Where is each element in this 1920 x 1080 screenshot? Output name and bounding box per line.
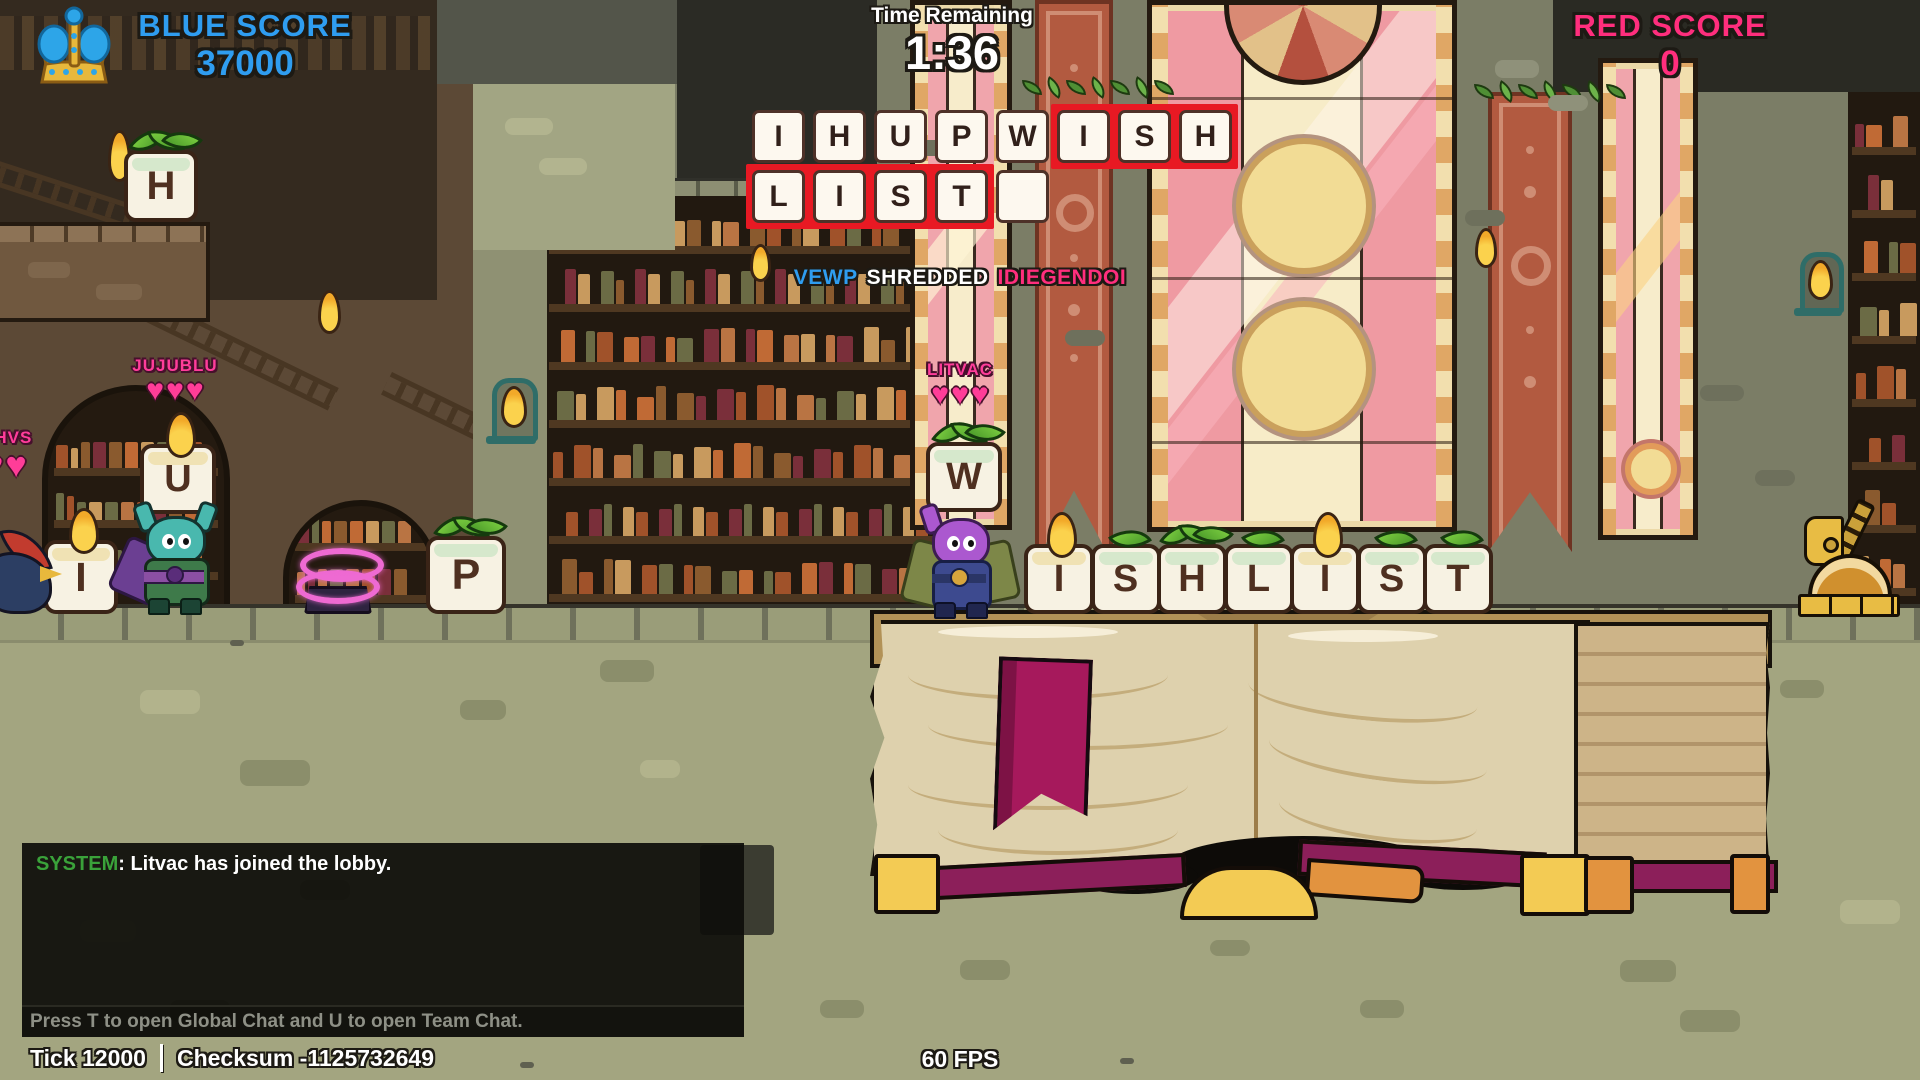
book-spine: [1864, 241, 1878, 273]
book-spine: [734, 443, 751, 478]
book-spine: [704, 329, 719, 362]
book-spine: [729, 509, 742, 536]
book-spine: [597, 387, 614, 420]
book-spine: [574, 445, 591, 478]
player-jujublu: JUJUBLU ♥♥♥ U: [110, 356, 240, 404]
book-spine: [797, 395, 814, 420]
book-spine: [776, 388, 786, 420]
timer-value: 1:36: [802, 28, 1102, 78]
floor-brick: [1680, 1010, 1740, 1032]
floor-brick: [460, 700, 506, 720]
bookshelf-row: [1852, 407, 1916, 470]
heart-icon: ♥: [166, 378, 184, 404]
book-spine: [877, 387, 894, 420]
floor-brick: [1780, 680, 1824, 698]
garland-leaf: [1518, 84, 1538, 99]
letter-tile-h: H: [124, 150, 198, 222]
book-spine: [579, 572, 593, 594]
book-spine: [382, 521, 395, 543]
book-spine: [334, 521, 347, 543]
book-spine: [837, 391, 854, 420]
rack-group: [996, 170, 1049, 223]
floor-brick: [1620, 960, 1676, 982]
floor-brick: [960, 960, 1010, 980]
book-spine: [109, 442, 122, 468]
book-spine: [398, 521, 411, 543]
book-spine: [674, 504, 682, 536]
window-circle: [1236, 301, 1372, 437]
book-spine: [1900, 243, 1916, 273]
wall-brick: [1495, 60, 1539, 78]
leaf-icon: [1444, 526, 1480, 552]
book-spine: [855, 564, 871, 594]
book-spine: [312, 515, 319, 543]
letter-rack: IHUPWISH LIST: [752, 110, 1232, 230]
stone-ledge: [0, 222, 210, 322]
book-spine: [586, 331, 595, 362]
letter-tile-w: W: [926, 442, 1002, 512]
book-spine: [604, 559, 613, 594]
timer-label: Time Remaining: [802, 4, 1102, 28]
player-nameplate-shvs: SHVS ♥♥: [0, 428, 72, 478]
bookshelf-row: [1852, 344, 1916, 407]
sprout-icon: [934, 418, 994, 448]
player-hearts: ♥♥♥: [900, 382, 1020, 408]
leaf-icon: [1245, 526, 1281, 552]
book-spine: [696, 396, 706, 420]
chat-system-message: SYSTEM: Litvac has joined the lobby.: [22, 843, 744, 886]
window-rosette: [1625, 443, 1677, 495]
book-spine: [378, 569, 391, 595]
book-spine: [684, 565, 693, 594]
book-spine: [666, 337, 675, 362]
book-spine: [721, 328, 735, 362]
rack-tile-i[interactable]: I: [1057, 110, 1110, 163]
book-spine: [884, 504, 892, 536]
floor-brick: [640, 760, 680, 778]
book-spine: [297, 524, 309, 543]
garland: [1022, 80, 1174, 95]
bookshelf-row: [1852, 155, 1916, 218]
book-spine: [894, 455, 911, 478]
heart-icon: ♥: [186, 378, 204, 404]
book-spine: [125, 442, 138, 468]
book-spine: [589, 509, 602, 536]
garland-leaf: [1066, 80, 1086, 95]
book-spine: [654, 451, 671, 478]
book-spine: [757, 385, 774, 420]
letter-tile-s: S: [1357, 544, 1427, 614]
book-spine: [561, 330, 575, 362]
leaf-icon: [1378, 526, 1414, 552]
book-spine: [712, 221, 721, 246]
book-spine: [616, 280, 624, 304]
book-spine: [659, 564, 673, 594]
eye: [178, 534, 191, 549]
book-spine: [1860, 307, 1877, 336]
book-spine: [71, 448, 78, 468]
book-spine: [636, 512, 648, 536]
chat-panel[interactable]: SYSTEM: Litvac has joined the lobby. Pre…: [22, 843, 744, 1037]
chat-messages[interactable]: SYSTEM: Litvac has joined the lobby.: [22, 843, 744, 1005]
book-spine: [637, 397, 654, 420]
floor-brick: [1210, 940, 1250, 956]
stone-pillar-lit: [473, 84, 675, 250]
rack-tile-u[interactable]: U: [874, 110, 927, 163]
book-spine: [322, 521, 331, 543]
chat-hint-text: Press T to open Global Chat and U to ope…: [30, 1011, 523, 1033]
book-spine: [837, 336, 853, 362]
book-clasp: [1730, 854, 1770, 914]
red-score-value: 0: [1570, 44, 1770, 84]
book-spine: [105, 502, 118, 520]
garland-leaf: [1154, 80, 1174, 95]
rack-tile-s[interactable]: S: [874, 170, 927, 223]
rack-tile-p[interactable]: P: [935, 110, 988, 163]
book-spine: [846, 512, 858, 536]
character-body: [910, 504, 1010, 612]
flame-icon: [166, 412, 196, 458]
book-spine: [1855, 124, 1864, 147]
status-bar: Tick 12000 Checksum -1125732649: [30, 1044, 434, 1072]
book-spine: [553, 452, 563, 478]
rack-tile-h[interactable]: H: [813, 110, 866, 163]
book-spine: [633, 444, 643, 478]
book-spine: [753, 446, 763, 478]
book-spine-crease: [1254, 624, 1258, 844]
book-spine: [624, 337, 639, 362]
book-spine: [562, 559, 577, 594]
rack-tile-s[interactable]: S: [1118, 110, 1171, 163]
book-spine: [642, 565, 657, 594]
book-spine: [677, 338, 693, 362]
book-spine: [816, 398, 826, 420]
eye: [162, 534, 175, 549]
rack-highlight-group: LIST: [746, 164, 994, 229]
sprout-icon: [131, 126, 191, 156]
book-spine: [641, 336, 655, 362]
book-spine: [739, 570, 753, 594]
book-spine: [623, 507, 634, 536]
bookshelf-row: [1852, 218, 1916, 281]
book-spine: [578, 274, 590, 304]
rack-tile-t[interactable]: T: [935, 170, 988, 223]
book-spine: [366, 521, 379, 543]
book-spine: [615, 560, 631, 594]
bird-beak: [40, 566, 62, 582]
heart-icon: ♥: [931, 382, 949, 408]
book-spine: [819, 562, 833, 594]
book-spine: [694, 447, 711, 478]
status-separator: [160, 1044, 163, 1072]
rack-row-2: LIST: [752, 170, 1232, 223]
book-spine: [873, 448, 883, 478]
book-spine: [673, 454, 683, 478]
heart-icon: ♥: [951, 382, 969, 408]
rack-highlight-group: ISH: [1051, 104, 1238, 169]
book-spine: [677, 393, 694, 420]
book-spine: [693, 507, 704, 536]
book-spine: [763, 507, 774, 536]
garland-leaf: [1474, 84, 1494, 99]
rack-tile-h[interactable]: H: [1179, 110, 1232, 163]
stained-glass-window-thin-right: [1598, 58, 1698, 540]
book-spine: [801, 334, 815, 362]
game-stage[interactable]: HIPISHLIST SHVS ♥♥ JUJUBLU ♥♥♥ U: [0, 0, 1920, 1080]
book-spine: [1900, 303, 1917, 336]
book-spine: [1868, 175, 1879, 210]
book-spine: [881, 340, 895, 362]
garland-leaf: [1110, 80, 1130, 95]
rack-tile-l[interactable]: L: [752, 170, 805, 223]
kill-feed-attacker: VEWP: [794, 266, 858, 290]
book-clasp: [1520, 854, 1590, 916]
heart-icon: ♥: [971, 382, 989, 408]
wall-brick: [1548, 95, 1588, 111]
book-spine: [746, 329, 755, 362]
wall-brick: [1700, 385, 1744, 401]
red-score-panel: RED SCORE 0: [1570, 8, 1770, 84]
book-spine: [593, 448, 603, 478]
book-spine: [869, 509, 882, 536]
wall-brick: [1465, 210, 1505, 226]
book-spine: [1877, 366, 1894, 399]
leaf-icon: [1112, 526, 1148, 552]
floor-brick: [1120, 1058, 1134, 1064]
bookshelf-row: [1852, 281, 1916, 344]
book-spine: [604, 504, 612, 536]
timer-panel: Time Remaining 1:36: [802, 4, 1102, 78]
book-spine: [764, 571, 773, 594]
book-spine: [576, 394, 586, 420]
wall-brick: [1755, 470, 1795, 486]
book-spine: [856, 394, 866, 420]
flame-icon: [1047, 512, 1077, 558]
book-spine: [648, 274, 660, 304]
book-spine: [695, 566, 711, 594]
letter-tile-h: H: [1157, 544, 1227, 614]
blue-score-value: 37000: [120, 44, 370, 84]
book-spine: [394, 569, 407, 595]
floor-brick: [240, 760, 310, 786]
book-spine: [1879, 310, 1889, 336]
floor-brick: [600, 660, 654, 682]
checksum-value: Checksum -1125732649: [177, 1045, 434, 1072]
book-spine: [1896, 369, 1906, 399]
floor-brick: [1360, 1000, 1404, 1018]
floor-brick: [140, 690, 200, 714]
book-spine: [826, 335, 835, 362]
letter-tile-i: I: [1290, 544, 1360, 614]
book-spine: [81, 442, 90, 468]
book-spine: [597, 332, 613, 362]
rack-tile-blank[interactable]: [996, 170, 1049, 223]
book-spine: [833, 507, 844, 536]
giant-open-book: [868, 610, 1766, 912]
floor-brick: [520, 1062, 534, 1068]
book-spine: [814, 504, 822, 536]
crown-icon: [28, 6, 120, 90]
floor-brick: [1840, 900, 1900, 924]
book-spine: [793, 456, 803, 478]
book-spine: [706, 512, 718, 536]
book-spine: [1866, 125, 1882, 147]
rack-group: IHUPW: [752, 110, 1049, 163]
book-spine: [1889, 242, 1898, 273]
rack-tile-i[interactable]: I: [752, 110, 805, 163]
chat-message-text: : Litvac has joined the lobby.: [118, 853, 391, 875]
book-spine: [566, 512, 578, 536]
book-spine: [833, 452, 843, 478]
rack-tile-w[interactable]: W: [996, 110, 1049, 163]
book-spine: [56, 493, 64, 520]
letter-tile-t: T: [1423, 544, 1493, 614]
heart-icon: ♥: [0, 452, 3, 478]
window-circle: [1236, 138, 1372, 274]
player-name: LITVAC: [900, 360, 1020, 380]
blue-score-label: BLUE SCORE: [120, 8, 370, 44]
book-spine: [882, 569, 897, 594]
book-spine: [814, 449, 831, 478]
book-spine: [799, 509, 812, 536]
floor-brick: [820, 1000, 864, 1018]
book-spine: [854, 445, 871, 478]
book-page-stack: [1574, 622, 1770, 874]
book-spine: [802, 563, 817, 594]
kill-feed-victim: IDIEGENDOI: [998, 266, 1127, 290]
book-spine: [659, 509, 672, 536]
red-score-label: RED SCORE: [1570, 8, 1770, 44]
rack-tile-i[interactable]: I: [813, 170, 866, 223]
bird-character: [0, 528, 66, 612]
wall-brick: [1065, 330, 1105, 346]
book-spine: [784, 335, 799, 362]
book-spine: [601, 271, 614, 304]
eye: [947, 536, 960, 551]
book-spine: [565, 269, 576, 304]
book-spine: [723, 222, 739, 246]
flame-icon: [69, 508, 99, 554]
book-spine: [757, 330, 773, 362]
tick-counter: Tick 12000: [30, 1045, 146, 1072]
book-spine: [656, 386, 666, 420]
book-spine: [717, 389, 734, 420]
book-spine: [776, 512, 788, 536]
rack-row-1: IHUPWISH: [752, 110, 1232, 163]
letter-tile-i: I: [1024, 544, 1094, 614]
book-spine: [557, 391, 574, 420]
heart-icon: ♥: [5, 452, 26, 478]
player-hearts: ♥♥♥: [110, 378, 240, 404]
book-spine: [350, 521, 363, 543]
book-spine: [713, 450, 723, 478]
letter-tile-p: P: [426, 536, 506, 614]
book-spine: [1881, 180, 1893, 210]
sprout-icon: [436, 512, 496, 542]
book-spine: [687, 220, 701, 246]
fps-counter: 60 FPS: [860, 1046, 1060, 1073]
character-body: [122, 502, 228, 608]
sprout-icon: [1162, 520, 1222, 550]
player-litvac: LITVAC ♥♥♥ W: [900, 360, 1020, 408]
book-clasp: [1584, 856, 1634, 914]
player-name: JUJUBLU: [110, 356, 240, 376]
chat-hint-bar: Press T to open Global Chat and U to ope…: [22, 1005, 744, 1037]
book-spine: [1892, 435, 1905, 462]
book-spine: [1893, 116, 1908, 147]
letter-tile-s: S: [1091, 544, 1161, 614]
flame-icon: [1313, 512, 1343, 558]
book-spine: [635, 269, 646, 304]
kill-feed-verb: SHREDDED: [867, 266, 989, 290]
garland-leaf: [1606, 84, 1626, 99]
book-spine: [775, 572, 791, 594]
letter-tile-l: L: [1224, 544, 1294, 614]
book-spine: [616, 390, 626, 420]
book-spine: [1856, 373, 1866, 399]
book-clasp: [874, 854, 940, 914]
book-spine: [736, 392, 746, 420]
blue-score-panel: BLUE SCORE 37000: [120, 8, 370, 84]
mid-gray-wall: [437, 0, 677, 84]
bookshelf-row: [1852, 92, 1916, 155]
player-hearts: ♥♥: [0, 452, 72, 478]
pink-spring: [294, 548, 378, 608]
garland-leaf: [1022, 80, 1042, 95]
red-banner-right: [1488, 92, 1572, 552]
book-spine: [744, 504, 752, 536]
book-spine: [722, 571, 737, 594]
gold-cannon: [1796, 492, 1906, 614]
chat-system-label: SYSTEM: [36, 853, 118, 875]
kill-feed: VEWP SHREDDED IDIEGENDOI: [660, 266, 1260, 290]
book-spine: [844, 563, 853, 594]
floor-brick: [230, 640, 244, 646]
book-spine: [774, 453, 791, 478]
book-spine: [614, 455, 631, 478]
book-spine: [864, 327, 879, 362]
heart-icon: ♥: [146, 378, 164, 404]
book-spine: [1869, 438, 1881, 462]
book-spine: [93, 442, 106, 468]
eye: [963, 536, 976, 551]
